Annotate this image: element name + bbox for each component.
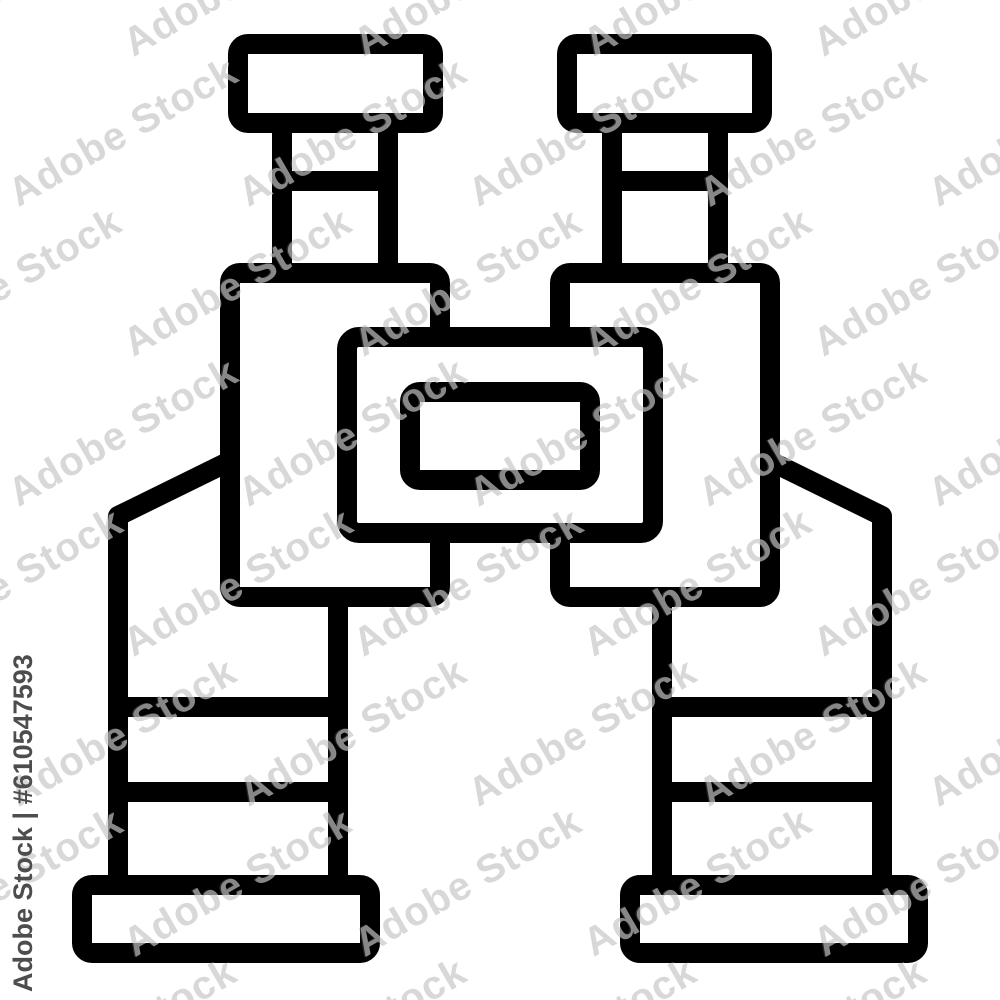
right-eyepiece: [567, 44, 762, 123]
right-neck: [602, 123, 728, 273]
stock-image-preview: Adobe StockAdobe StockAdobe StockAdobe S…: [0, 0, 1000, 1000]
left-foot: [82, 885, 370, 953]
left-neck: [272, 123, 398, 273]
watermark-id-label: Adobe Stock | #610547593: [8, 654, 39, 992]
binoculars-icon: [0, 0, 1000, 1000]
left-eyepiece: [238, 44, 433, 123]
right-foot: [630, 885, 918, 953]
bridge-window: [410, 392, 590, 480]
